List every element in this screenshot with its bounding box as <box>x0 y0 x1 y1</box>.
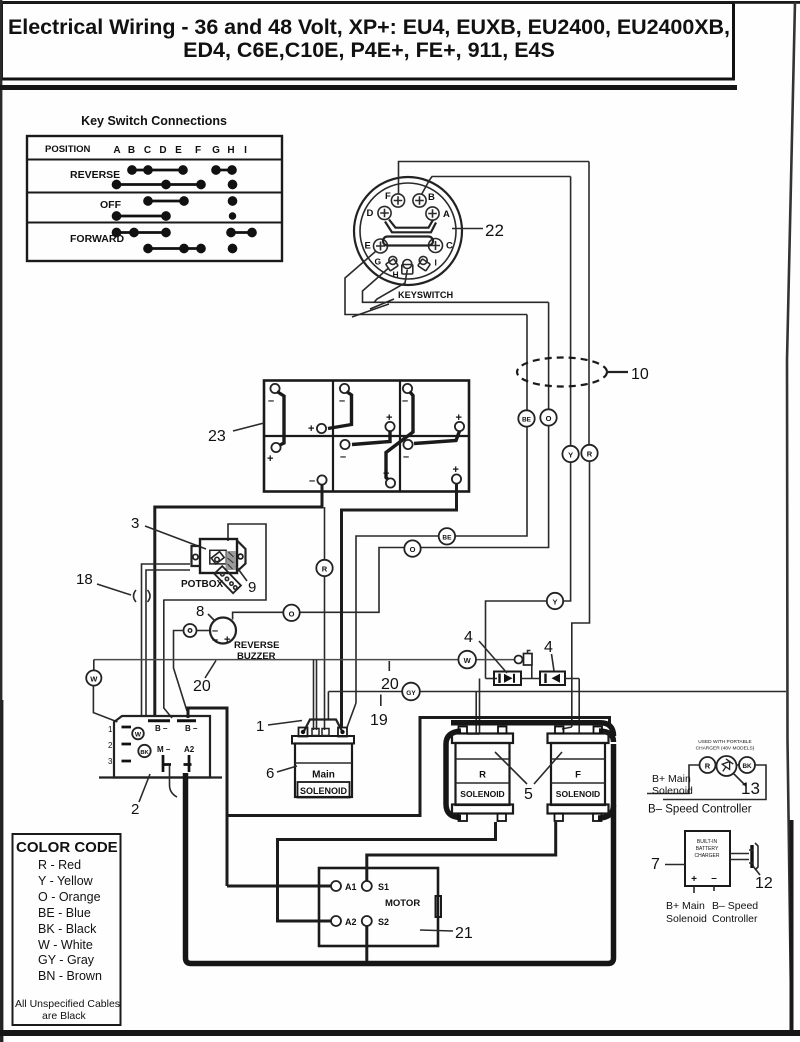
svg-text:–: – <box>402 395 408 407</box>
svg-text:BATTERY: BATTERY <box>696 846 719 852</box>
svg-text:7: 7 <box>651 856 660 873</box>
svg-text:BE: BE <box>442 534 452 541</box>
svg-text:–: – <box>309 475 315 487</box>
svg-text:SOLENOID: SOLENOID <box>300 786 348 796</box>
svg-text:BE - Blue: BE - Blue <box>38 906 91 920</box>
svg-text:+: + <box>386 412 392 424</box>
svg-text:D: D <box>159 145 166 156</box>
svg-text:3: 3 <box>108 757 113 766</box>
svg-text:A2: A2 <box>345 917 357 927</box>
svg-text:POTBOX: POTBOX <box>181 579 224 590</box>
svg-text:+: + <box>267 453 273 465</box>
svg-text:S2: S2 <box>378 917 389 927</box>
svg-text:REVERSE: REVERSE <box>70 169 120 181</box>
svg-text:I: I <box>435 258 437 268</box>
svg-text:12: 12 <box>755 875 773 892</box>
svg-text:Solenoid: Solenoid <box>652 785 693 797</box>
svg-text:A2: A2 <box>184 745 195 754</box>
svg-text:W - White: W - White <box>38 938 93 952</box>
svg-text:R: R <box>705 762 711 771</box>
svg-text:M –: M – <box>157 745 171 754</box>
svg-text:5: 5 <box>524 786 533 803</box>
svg-text:2: 2 <box>131 801 139 818</box>
svg-text:B– Speed: B– Speed <box>712 900 758 912</box>
svg-text:22: 22 <box>485 221 504 240</box>
svg-text:Solenoid: Solenoid <box>666 913 707 925</box>
svg-text:B– Speed Controller: B– Speed Controller <box>648 804 752 816</box>
svg-text:10: 10 <box>631 366 649 383</box>
svg-text:+: + <box>383 468 389 480</box>
svg-text:R: R <box>322 565 328 574</box>
svg-text:G: G <box>375 257 382 267</box>
svg-text:R - Red: R - Red <box>38 858 81 872</box>
svg-text:OFF: OFF <box>100 199 122 211</box>
svg-text:O: O <box>289 609 295 618</box>
svg-text:–: – <box>339 395 345 407</box>
svg-text:B: B <box>428 192 435 203</box>
svg-text:20: 20 <box>381 676 399 693</box>
svg-text:19: 19 <box>370 712 388 729</box>
svg-text:–: – <box>340 451 346 463</box>
svg-text:ED4, C6E,C10E, P4E+, FE+, 911,: ED4, C6E,C10E, P4E+, FE+, 911, E4S <box>183 38 555 62</box>
svg-text:4: 4 <box>464 629 473 646</box>
svg-text:Y: Y <box>568 451 573 460</box>
svg-text:G: G <box>212 145 220 156</box>
svg-text:B –: B – <box>185 724 198 733</box>
svg-text:Y - Yellow: Y - Yellow <box>38 874 94 888</box>
svg-text:COLOR CODE: COLOR CODE <box>16 839 118 856</box>
svg-text:B+ Main: B+ Main <box>666 900 705 912</box>
svg-text:S1: S1 <box>378 882 389 892</box>
svg-text:MOTOR: MOTOR <box>385 898 420 909</box>
svg-text:13: 13 <box>741 779 760 798</box>
svg-text:F: F <box>575 770 581 781</box>
svg-text:E: E <box>365 241 371 252</box>
svg-text:are Black: are Black <box>42 1010 87 1022</box>
svg-text:+: + <box>224 634 230 646</box>
svg-text:23: 23 <box>208 428 226 445</box>
svg-text:W: W <box>464 656 472 665</box>
svg-text:USED WITH PORTABLE: USED WITH PORTABLE <box>698 739 751 745</box>
svg-text:Controller: Controller <box>712 913 758 925</box>
svg-text:W: W <box>135 732 142 739</box>
svg-text:O: O <box>410 545 416 554</box>
svg-text:18: 18 <box>76 571 93 588</box>
svg-text:2: 2 <box>108 741 113 750</box>
svg-text:–: – <box>403 451 409 463</box>
svg-text:1: 1 <box>256 718 264 735</box>
svg-text:Electrical Wiring - 36 and 48: Electrical Wiring - 36 and 48 Volt, XP+:… <box>8 15 730 39</box>
svg-text:Y: Y <box>552 598 557 607</box>
svg-text:E: E <box>175 145 182 156</box>
svg-text:GY: GY <box>406 690 416 697</box>
svg-text:+: + <box>453 464 459 476</box>
svg-text:F: F <box>195 145 201 156</box>
svg-text:D: D <box>367 208 374 219</box>
svg-text:3: 3 <box>131 515 139 532</box>
svg-text:B –: B – <box>155 724 168 733</box>
svg-text:4: 4 <box>544 639 553 656</box>
svg-text:CHARGER: CHARGER <box>694 853 719 859</box>
svg-text:BK: BK <box>742 763 752 770</box>
svg-text:I: I <box>244 145 247 156</box>
svg-text:REVERSE: REVERSE <box>234 640 279 651</box>
svg-text:BUILT-IN: BUILT-IN <box>697 839 718 845</box>
svg-text:BE: BE <box>522 417 532 424</box>
svg-text:+: + <box>691 874 697 885</box>
svg-text:O: O <box>546 414 552 423</box>
svg-text:H: H <box>393 270 399 280</box>
svg-text:A1: A1 <box>345 882 357 892</box>
svg-text:Main: Main <box>312 770 335 781</box>
svg-text:1: 1 <box>108 725 113 734</box>
svg-text:+: + <box>308 423 314 435</box>
svg-text:BK: BK <box>140 750 149 756</box>
svg-text:A: A <box>443 209 450 220</box>
svg-text:B: B <box>128 145 135 156</box>
svg-text:H: H <box>227 145 234 156</box>
svg-text:B+ Main: B+ Main <box>652 773 691 785</box>
svg-text:6: 6 <box>266 765 274 782</box>
svg-text:CHARGER (48V MODELS): CHARGER (48V MODELS) <box>696 746 755 752</box>
svg-text:KEYSWITCH: KEYSWITCH <box>398 290 453 300</box>
svg-text:C: C <box>446 241 453 252</box>
svg-text:8: 8 <box>196 603 204 620</box>
svg-text:W: W <box>90 675 98 684</box>
svg-text:R: R <box>587 450 593 459</box>
svg-text:20: 20 <box>193 678 211 695</box>
svg-text:F: F <box>385 191 391 202</box>
svg-text:–: – <box>711 873 717 884</box>
svg-text:O - Orange: O - Orange <box>38 890 101 904</box>
svg-text:9: 9 <box>248 579 256 596</box>
svg-text:POSITION: POSITION <box>45 144 91 155</box>
svg-text:GY - Gray: GY - Gray <box>38 953 95 967</box>
svg-text:Key Switch Connections: Key Switch Connections <box>81 114 227 128</box>
svg-text:R: R <box>479 770 486 781</box>
svg-text:A: A <box>113 145 120 156</box>
svg-text:All Unspecified Cables: All Unspecified Cables <box>15 998 120 1010</box>
svg-text:+: + <box>456 412 462 424</box>
svg-text:–: – <box>212 634 218 646</box>
svg-text:–: – <box>268 395 274 407</box>
svg-text:SOLENOID: SOLENOID <box>556 789 600 799</box>
svg-text:SOLENOID: SOLENOID <box>460 789 504 799</box>
svg-text:BK - Black: BK - Black <box>38 922 97 936</box>
svg-text:BN - Brown: BN - Brown <box>38 969 102 983</box>
svg-text:C: C <box>144 145 151 156</box>
svg-text:21: 21 <box>455 925 473 942</box>
